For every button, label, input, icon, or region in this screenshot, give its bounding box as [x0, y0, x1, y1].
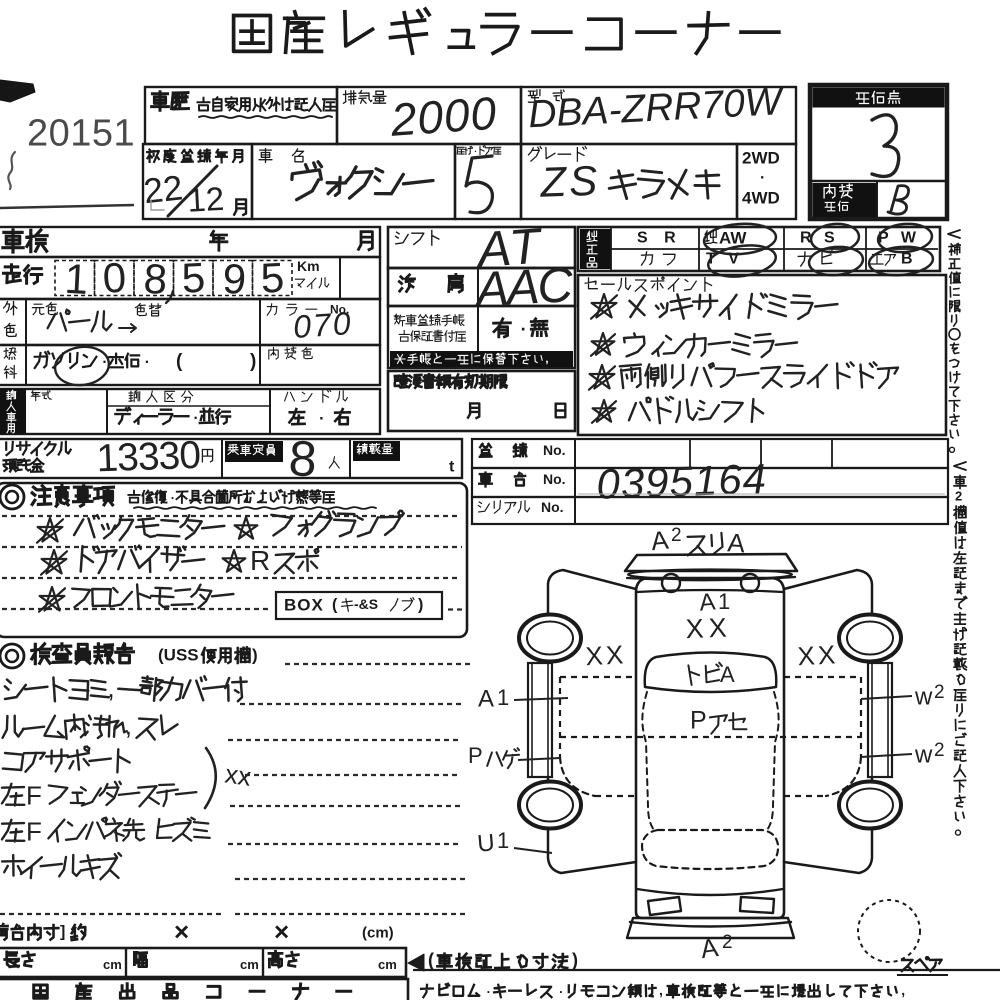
svg-text:XX: XX	[585, 639, 627, 671]
svg-text:5: 5	[260, 254, 286, 302]
svg-text:cm: cm	[240, 957, 259, 972]
svg-text:2WD: 2WD	[742, 148, 780, 167]
svg-text:R: R	[250, 545, 270, 576]
svg-text:0: 0	[102, 254, 128, 302]
svg-text:XX: XX	[797, 639, 839, 671]
svg-text:·: ·	[319, 410, 324, 428]
svg-text:BOX: BOX	[284, 595, 324, 614]
svg-text:,: ,	[125, 710, 132, 740]
svg-text:(: (	[332, 597, 338, 614]
svg-text:·: ·	[474, 147, 477, 156]
svg-text:]: ]	[60, 924, 65, 941]
svg-text:XX: XX	[685, 613, 732, 645]
svg-text:No.: No.	[541, 499, 564, 515]
svg-text:,: ,	[659, 982, 663, 998]
svg-text:R S: R S	[800, 230, 839, 247]
svg-text:×: ×	[174, 916, 189, 946]
svg-text:): )	[252, 645, 258, 664]
svg-text:·: ·	[521, 320, 527, 340]
svg-text:·: ·	[487, 985, 491, 999]
svg-text:20151: 20151	[27, 113, 135, 155]
svg-text:(: (	[176, 351, 183, 372]
svg-text:2: 2	[934, 682, 945, 703]
svg-text:AW: AW	[719, 228, 747, 247]
svg-text:P W: P W	[878, 230, 920, 247]
svg-text:1: 1	[497, 828, 509, 853]
svg-text:A: A	[720, 662, 735, 687]
svg-text:4WD: 4WD	[742, 188, 780, 207]
svg-text:8: 8	[287, 430, 318, 487]
svg-text:,: ,	[901, 982, 905, 998]
svg-text:·: ·	[559, 985, 563, 999]
svg-text:2: 2	[934, 740, 945, 761]
svg-text:-&S: -&S	[354, 596, 378, 612]
svg-text:DBA-ZRR70W: DBA-ZRR70W	[527, 80, 786, 136]
svg-text:w: w	[914, 684, 933, 711]
svg-text:(: (	[428, 950, 434, 970]
svg-text:U: U	[476, 829, 496, 857]
svg-text:×: ×	[274, 916, 289, 946]
svg-text:·: ·	[760, 170, 765, 187]
svg-text:12: 12	[186, 180, 225, 219]
svg-text:w: w	[914, 742, 933, 769]
svg-text:No.: No.	[543, 442, 566, 458]
svg-text:cm: cm	[103, 957, 122, 972]
svg-text:F: F	[26, 816, 42, 846]
svg-text:1: 1	[718, 589, 730, 614]
svg-text:2: 2	[671, 525, 682, 546]
svg-text:(cm): (cm)	[362, 925, 394, 942]
svg-text:2000: 2000	[388, 87, 499, 146]
svg-text:No.: No.	[543, 471, 566, 487]
svg-text:): )	[418, 597, 423, 614]
svg-text:·: ·	[194, 410, 199, 427]
svg-text:1: 1	[64, 255, 90, 303]
svg-text:5: 5	[181, 254, 207, 302]
svg-text:070: 070	[292, 305, 354, 345]
svg-text:P: P	[690, 707, 707, 735]
svg-text:): )	[250, 351, 256, 372]
svg-text:A: A	[649, 525, 670, 557]
svg-text:·: ·	[171, 491, 175, 505]
svg-text:ZS: ZS	[539, 157, 601, 206]
svg-text:0395164: 0395164	[596, 455, 768, 508]
svg-text:1: 1	[497, 685, 509, 710]
svg-text:S R: S R	[637, 230, 682, 247]
svg-text:A: A	[478, 686, 494, 713]
svg-text:9: 9	[222, 255, 248, 303]
svg-text:cm: cm	[378, 957, 397, 972]
svg-text:t: t	[449, 459, 455, 476]
svg-text:Km: Km	[297, 258, 320, 274]
svg-text:8: 8	[143, 255, 169, 303]
svg-text:2: 2	[955, 488, 962, 503]
svg-text:): )	[572, 950, 578, 970]
svg-text:·: ·	[145, 354, 150, 371]
svg-text:AAC: AAC	[472, 258, 575, 317]
svg-text:(USS: (USS	[158, 645, 199, 664]
svg-text:,: ,	[545, 351, 548, 365]
svg-text:2: 2	[722, 932, 733, 953]
svg-text:F: F	[26, 780, 42, 810]
svg-text:P: P	[468, 743, 483, 768]
svg-text:13330: 13330	[96, 434, 201, 481]
svg-text:,: ,	[107, 673, 115, 703]
